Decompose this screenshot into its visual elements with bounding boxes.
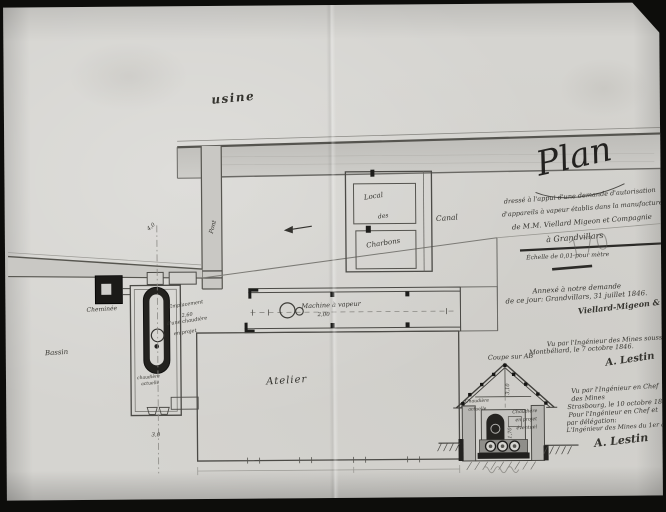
machine-hall — [244, 287, 460, 333]
section-title: Coupe sur AB — [488, 353, 534, 361]
scanned-plan-document: usine Pont Canal Bassin Cheminée Atelier… — [0, 0, 666, 512]
plan-linework — [3, 2, 663, 500]
paper-sheet: usine Pont Canal Bassin Cheminée Atelier… — [3, 2, 663, 500]
dimension-label: 3,0 — [151, 433, 160, 439]
machine-dim: 2,00 — [317, 313, 329, 319]
section-dim-height: 3,10 — [506, 383, 511, 394]
canal-label: Canal — [436, 213, 458, 222]
section-dim-width: 1,70 — [508, 427, 513, 438]
bassin-label: Bassin — [45, 349, 69, 357]
section-left-label: actuelle — [468, 407, 486, 412]
chimney — [95, 276, 130, 304]
flow-arrow-icon — [284, 226, 312, 234]
cross-section — [437, 363, 579, 473]
channel — [201, 146, 222, 289]
bridge-piers — [147, 272, 196, 284]
atelier-room — [197, 331, 460, 475]
